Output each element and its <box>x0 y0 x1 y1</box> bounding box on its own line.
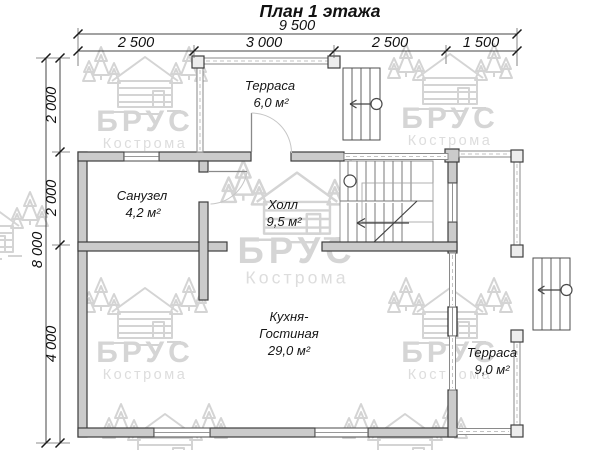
room-label-kitchen-line2: Гостиная <box>259 326 319 341</box>
steps-start-marker <box>561 285 572 296</box>
room-label-terrace-right-area: 9,0 м² <box>475 362 511 377</box>
wall-segment <box>199 161 208 172</box>
door-arc <box>252 113 292 153</box>
railing-post <box>511 245 523 257</box>
interior-staircase <box>340 161 433 244</box>
room-label-terrace-top-name: Терраса <box>245 78 295 93</box>
watermark <box>103 404 227 450</box>
dimension-left-segments: 2 000 2 000 4 000 <box>44 54 70 448</box>
room-label-terrace-top-area: 6,0 м² <box>254 95 290 110</box>
stair-start-marker <box>344 175 356 187</box>
dim-label-segment: 2 000 <box>44 180 60 217</box>
watermark-brand: БРУС <box>96 105 194 138</box>
wall-segment <box>322 242 457 251</box>
watermark-brand: БРУС <box>401 102 499 135</box>
dim-label-segment: 2 500 <box>371 35 408 51</box>
watermark-brand: БРУС <box>96 336 194 369</box>
wall-segment <box>78 152 124 161</box>
floor-plan-canvas: БРУС Кострома БРУС Кострома БРУС Костром… <box>0 0 600 450</box>
watermark-city: Кострома <box>408 133 493 149</box>
railing-post <box>511 150 523 162</box>
room-label-kitchen-line1: Кухня- <box>270 309 310 324</box>
wall-segment <box>199 202 208 300</box>
watermark: БРУС Кострома <box>83 278 207 383</box>
dim-label-total-height: 8 000 <box>30 232 46 268</box>
watermark: БРУС Кострома <box>388 44 512 149</box>
dim-label-segment: 4 000 <box>44 326 60 362</box>
wall-segment <box>78 152 87 437</box>
steps-start-marker <box>371 99 382 110</box>
room-label-hall-area: 9,5 м² <box>267 214 303 229</box>
room-label-bathroom-area: 4,2 м² <box>126 205 162 220</box>
watermark-city: Кострома <box>103 367 188 383</box>
watermark: БРУС Кострома <box>83 47 207 152</box>
dim-label-segment: 2 000 <box>44 87 60 124</box>
wall-segment <box>368 428 457 437</box>
wall-segment <box>448 390 457 437</box>
wall-segment <box>159 152 251 161</box>
railing-post <box>511 425 523 437</box>
watermark-city: Кострома <box>245 268 348 288</box>
entrance-steps-right <box>533 258 572 330</box>
plan-title: План 1 этажа <box>259 1 380 21</box>
dim-label-segment: 3 000 <box>246 35 282 51</box>
wall-segment <box>291 152 344 161</box>
entrance-steps-top <box>343 68 382 140</box>
room-label-terrace-right-name: Терраса <box>467 345 517 360</box>
dim-label-segment: 1 500 <box>463 35 499 51</box>
dim-label-segment: 2 500 <box>117 35 154 51</box>
wall-segment <box>210 428 315 437</box>
wall-segment <box>78 428 154 437</box>
railing-post <box>511 330 523 342</box>
room-label-bathroom-name: Санузел <box>117 188 168 203</box>
room-label-kitchen-area: 29,0 м² <box>267 343 311 358</box>
watermark-city: Кострома <box>103 136 188 152</box>
floor-plan-drawing: БРУС Кострома БРУС Кострома БРУС Костром… <box>0 0 600 450</box>
room-label-hall-name: Холл <box>267 197 299 212</box>
